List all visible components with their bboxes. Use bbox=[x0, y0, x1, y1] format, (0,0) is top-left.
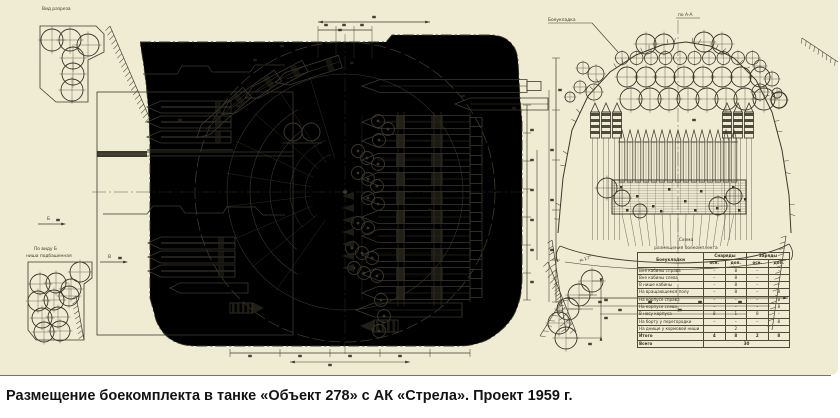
shell-base-dot bbox=[380, 299, 383, 302]
rect bbox=[396, 249, 405, 261]
table-cell: – bbox=[747, 304, 769, 311]
rect bbox=[613, 131, 622, 134]
totals-row: Итого4828 bbox=[638, 333, 790, 340]
rect bbox=[723, 119, 732, 122]
rect bbox=[232, 303, 235, 313]
table-cell: – bbox=[747, 296, 769, 303]
shell-base-dot bbox=[357, 222, 360, 225]
dim-label-mark bbox=[253, 59, 257, 61]
table-cell: – bbox=[747, 282, 769, 289]
shell-base-dot bbox=[367, 197, 370, 200]
rect bbox=[218, 237, 224, 249]
table-cell: – bbox=[704, 304, 726, 311]
dim-label-mark bbox=[342, 24, 346, 26]
rect bbox=[602, 113, 611, 116]
rect bbox=[734, 119, 743, 122]
rack-dot bbox=[636, 195, 639, 198]
section-top-label: по А-А bbox=[678, 12, 693, 18]
shell-base-dot bbox=[357, 150, 360, 153]
rack-dot bbox=[668, 188, 671, 191]
rect bbox=[237, 303, 240, 313]
dim-label-mark bbox=[280, 45, 284, 47]
rack-dot bbox=[744, 198, 747, 201]
row-label: В нише кабины bbox=[638, 282, 704, 289]
grand-total-row: Всего30 bbox=[638, 340, 790, 347]
table-cell: – bbox=[747, 289, 769, 296]
table-cell: 2 bbox=[747, 333, 769, 340]
table-cell: – bbox=[747, 274, 769, 281]
rect bbox=[602, 119, 611, 122]
dim-label-mark bbox=[530, 219, 534, 221]
shell-base-dot bbox=[377, 163, 380, 166]
rect bbox=[591, 119, 600, 122]
dim-label-mark bbox=[398, 355, 402, 357]
table-cell: – bbox=[725, 318, 747, 325]
table-cell: 8 bbox=[768, 296, 790, 303]
leader-label: Боеукладка bbox=[548, 17, 576, 23]
dim-label-mark bbox=[530, 249, 534, 251]
table-subheader: осн. bbox=[704, 260, 726, 267]
dim-label-mark bbox=[588, 343, 592, 345]
rect bbox=[734, 125, 743, 128]
row-label: Вне кабины слева bbox=[638, 274, 704, 281]
table-corner-cell: Боеукладки bbox=[638, 253, 704, 268]
dim-label-mark bbox=[428, 209, 432, 211]
table-row: На корпусе слева–––8 bbox=[638, 304, 790, 311]
dim-label-mark bbox=[324, 24, 328, 26]
rect bbox=[734, 113, 743, 116]
dim-label-mark bbox=[530, 159, 534, 161]
shell-base-dot bbox=[387, 128, 390, 131]
dim-label-mark bbox=[618, 309, 622, 311]
table-subheader: осн. bbox=[747, 260, 769, 267]
dim-label-mark bbox=[298, 355, 302, 357]
rect bbox=[242, 303, 245, 313]
table-cell: – bbox=[704, 274, 726, 281]
dim-label-mark bbox=[178, 119, 182, 121]
table-subheader: доп. bbox=[768, 260, 790, 267]
dim-label-mark bbox=[348, 355, 352, 357]
dim-label-mark bbox=[328, 364, 332, 366]
dim-label-mark bbox=[338, 29, 342, 31]
rect bbox=[396, 268, 405, 280]
table-cell: – bbox=[768, 311, 790, 318]
row-label: На вращающемся полу bbox=[638, 289, 704, 296]
rect bbox=[613, 113, 622, 116]
rect bbox=[745, 113, 754, 116]
table-group-header: Заряды bbox=[747, 253, 790, 260]
rect bbox=[396, 154, 405, 166]
table-cell bbox=[747, 325, 769, 332]
dim-label-mark bbox=[56, 219, 60, 221]
rect bbox=[591, 125, 600, 128]
bottom-left-label-1: По виду Б bbox=[34, 246, 57, 252]
table-cell: 8 bbox=[768, 289, 790, 296]
rect bbox=[247, 303, 250, 313]
table-row: На борту у перегородки–––8 bbox=[638, 318, 790, 325]
table-cell: 8 bbox=[725, 282, 747, 289]
scheme-label-1: Схема bbox=[679, 237, 694, 243]
dim-label-mark bbox=[530, 189, 534, 191]
dim-label-mark bbox=[248, 355, 252, 357]
arrow-v-label: В bbox=[108, 254, 111, 260]
rect bbox=[215, 131, 221, 143]
table-cell: 8 bbox=[704, 311, 726, 318]
dim-label-mark bbox=[692, 119, 696, 121]
rack-dot bbox=[652, 205, 655, 208]
table-cell: – bbox=[768, 274, 790, 281]
table-cell: 4 bbox=[704, 333, 726, 340]
rect bbox=[396, 192, 405, 204]
table-cell bbox=[704, 325, 726, 332]
table-cell: – bbox=[768, 267, 790, 274]
rack-dot bbox=[626, 209, 629, 212]
rect bbox=[602, 125, 611, 128]
scanned-page: Вид разреза По виду Б ниша подбашенная Б… bbox=[0, 0, 840, 418]
shell-base-dot bbox=[357, 172, 360, 175]
rect bbox=[745, 119, 754, 122]
rect bbox=[591, 131, 600, 134]
rect bbox=[602, 131, 611, 134]
table-header-row: БоеукладкиСнарядыЗаряды bbox=[638, 253, 790, 260]
rack-dot bbox=[694, 209, 697, 212]
table-row: Вне кабины слева–8–– bbox=[638, 274, 790, 281]
table-subheader: доп. bbox=[725, 260, 747, 267]
table-cell: – bbox=[704, 282, 726, 289]
figure-caption: Размещение боекомплекта в танке «Объект … bbox=[6, 388, 834, 404]
table-cell: – bbox=[725, 304, 747, 311]
table-row: В нише кабины–8–– bbox=[638, 282, 790, 289]
dim-label-mark bbox=[604, 299, 608, 301]
rect bbox=[396, 116, 405, 128]
rect bbox=[745, 125, 754, 128]
dim-label-mark bbox=[558, 89, 562, 91]
shell-base-dot bbox=[367, 227, 370, 230]
table-cell: – bbox=[704, 289, 726, 296]
shell-base-dot bbox=[376, 275, 379, 278]
turret-center bbox=[343, 190, 347, 194]
table-cell: 8 bbox=[747, 311, 769, 318]
table-cell bbox=[768, 325, 790, 332]
rect bbox=[396, 230, 405, 242]
dim-label-mark bbox=[604, 317, 608, 319]
row-label: На днище у кормовой ниши bbox=[638, 325, 704, 332]
row-label: На корпусе справа bbox=[638, 296, 704, 303]
rack-dot bbox=[700, 190, 703, 193]
rect bbox=[396, 173, 405, 185]
dim-label-mark bbox=[550, 199, 554, 201]
table-cell: – bbox=[704, 318, 726, 325]
table-cell: 8 bbox=[725, 274, 747, 281]
table-cell: – bbox=[704, 267, 726, 274]
table-group-header: Снаряды bbox=[704, 253, 747, 260]
table-row: Вне кабины справа–8–– bbox=[638, 267, 790, 274]
table-row: На корпусе справа–––8 bbox=[638, 296, 790, 303]
grand-total-label: Всего bbox=[638, 340, 704, 347]
table-cell: – bbox=[747, 267, 769, 274]
rect bbox=[745, 131, 754, 134]
table-cell: 1 bbox=[725, 311, 747, 318]
row-label: Вне кабины справа bbox=[638, 267, 704, 274]
dim-label-mark bbox=[350, 62, 354, 64]
dim-label-mark bbox=[118, 257, 122, 259]
dim-label-mark bbox=[598, 301, 602, 303]
table-cell: – bbox=[704, 296, 726, 303]
arrow-b-label: Б bbox=[47, 216, 50, 222]
rect bbox=[393, 320, 396, 332]
table-row: В носу корпуса818– bbox=[638, 311, 790, 318]
rect bbox=[396, 135, 405, 147]
table-row: На вращающемся полу–8–8 bbox=[638, 289, 790, 296]
table-cell: 8 bbox=[768, 304, 790, 311]
table-cell: 8 bbox=[768, 333, 790, 340]
rect bbox=[215, 101, 221, 113]
rect bbox=[215, 116, 221, 128]
table-row: На днище у кормовой ниши2 bbox=[638, 325, 790, 332]
rack-dot bbox=[738, 209, 741, 212]
rect bbox=[396, 211, 405, 223]
rect bbox=[723, 113, 732, 116]
rect bbox=[723, 125, 732, 128]
shell-base-dot bbox=[378, 330, 381, 333]
table-cell: – bbox=[725, 296, 747, 303]
table-cell: 8 bbox=[725, 289, 747, 296]
table-cell: – bbox=[747, 318, 769, 325]
table-cell: – bbox=[768, 282, 790, 289]
dim-label-mark bbox=[372, 16, 376, 18]
dim-label-mark bbox=[550, 249, 554, 251]
rect bbox=[613, 125, 622, 128]
row-label: На борту у перегородки bbox=[638, 318, 704, 325]
bottom-left-label-2: ниша подбашенная bbox=[26, 252, 72, 259]
top-left-label: Вид разреза bbox=[42, 6, 71, 12]
table-cell: 8 bbox=[768, 318, 790, 325]
table-cell: 8 bbox=[725, 267, 747, 274]
rect bbox=[218, 251, 224, 263]
totals-label: Итого bbox=[638, 333, 704, 340]
dim-label-mark bbox=[530, 129, 534, 131]
row-label: На корпусе слева bbox=[638, 304, 704, 311]
scheme-label-2: размещения боекомплекта bbox=[654, 244, 718, 251]
dim-label-mark bbox=[360, 24, 364, 26]
shell-base-dot bbox=[367, 178, 370, 181]
dim-label-mark bbox=[550, 149, 554, 151]
table-cell: 2 bbox=[725, 325, 747, 332]
grand-total-value: 30 bbox=[704, 340, 790, 347]
rect bbox=[591, 113, 600, 116]
rect bbox=[396, 287, 405, 299]
rect bbox=[613, 119, 622, 122]
rail-dark bbox=[97, 151, 147, 157]
rect bbox=[218, 265, 224, 277]
dim-label-mark bbox=[530, 281, 534, 283]
dim-label-mark bbox=[512, 107, 516, 109]
table-cell: 8 bbox=[725, 333, 747, 340]
rack-dot bbox=[660, 210, 663, 213]
dim-label-mark bbox=[236, 105, 240, 107]
rack-dot bbox=[684, 200, 687, 203]
dim-label-mark bbox=[461, 95, 465, 97]
row-label: В носу корпуса bbox=[638, 311, 704, 318]
ammo-stowage-table: БоеукладкиСнарядыЗарядыосн.доп.осн.доп.В… bbox=[637, 252, 790, 348]
